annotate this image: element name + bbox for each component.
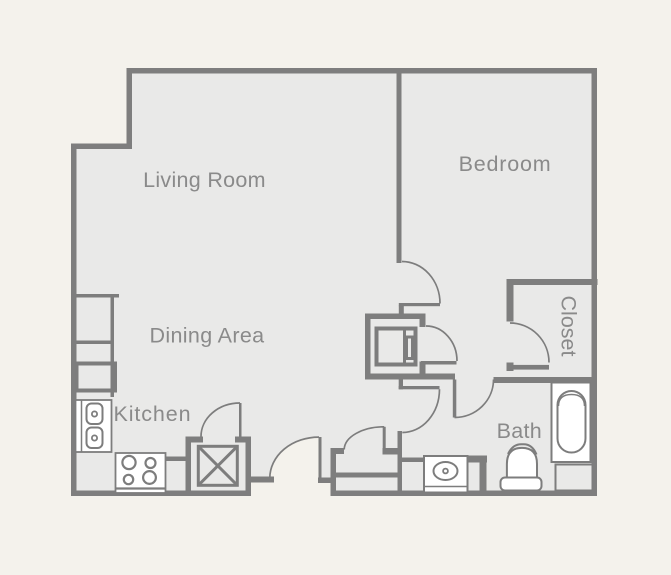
svg-text:Bath: Bath [497, 419, 542, 443]
svg-text:Dining Area: Dining Area [149, 324, 264, 348]
svg-text:Closet: Closet [557, 296, 581, 357]
svg-text:Kitchen: Kitchen [113, 402, 191, 426]
svg-text:Bedroom: Bedroom [459, 152, 552, 176]
svg-text:Living Room: Living Room [143, 168, 266, 192]
